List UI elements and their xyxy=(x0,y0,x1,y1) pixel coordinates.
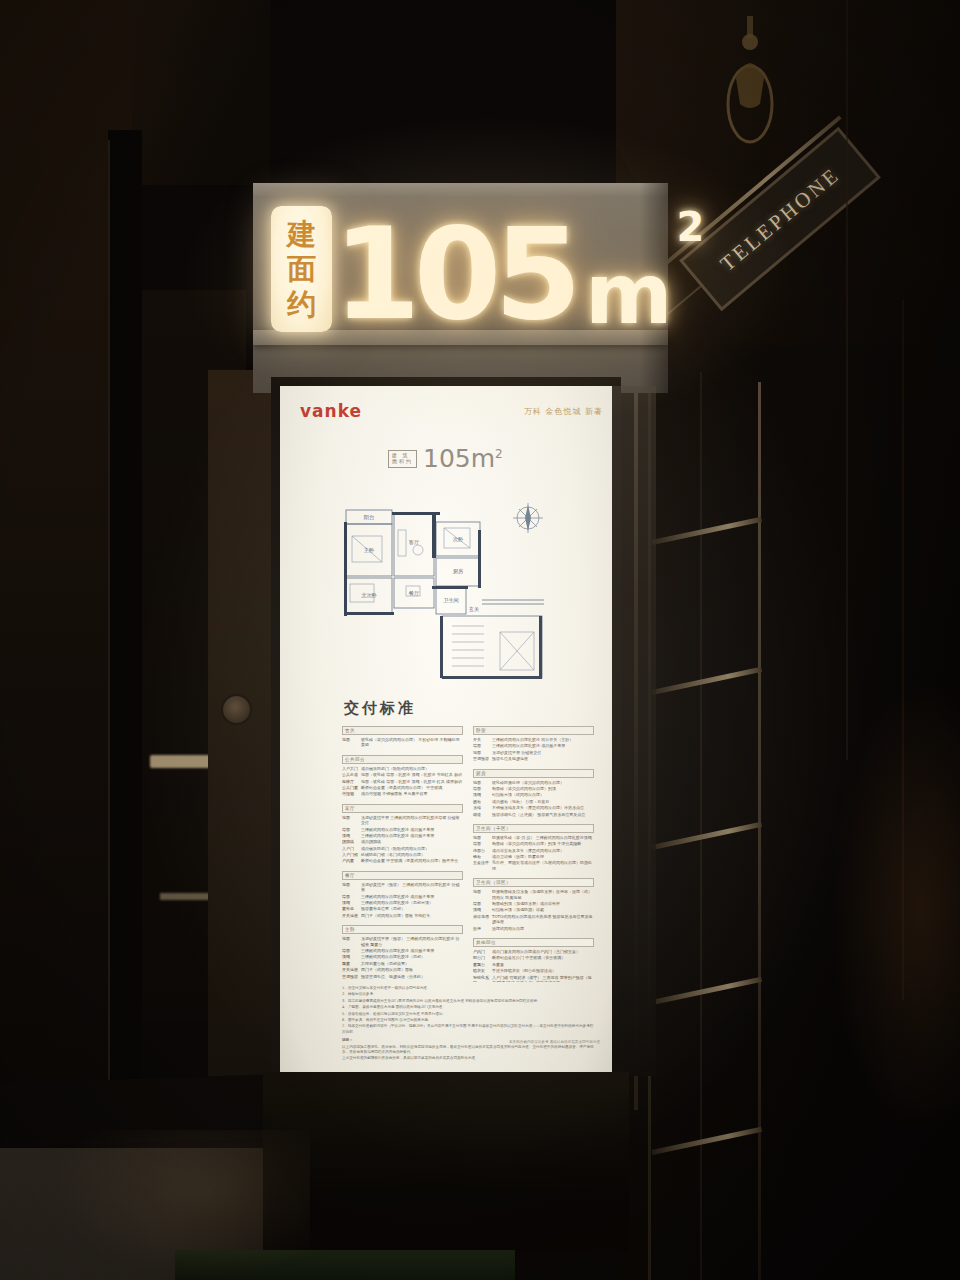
spec-row-label: 墙面 xyxy=(473,901,489,906)
delivery-notes: 1、所交付实物与本交付标准不一致的以合同约定为准。2、样板间仅供参考。3、因工程… xyxy=(342,986,596,1063)
spec-row-label: 飘窗 xyxy=(342,961,358,966)
spec-section: 玄关地面玻化砖（诺贝尔或同档次品牌） 不起砂处理 不翻碱处理 美观 xyxy=(342,726,463,749)
spec-row: 户内门成品门套及同档次品牌成品户内门（含门锁五金） xyxy=(473,949,594,954)
spec-row-text: 三棵树或同档次品牌乳胶漆 成品腻子基层 xyxy=(361,827,463,832)
spec-section-title: 卫生间（湿区） xyxy=(473,878,594,887)
spec-row-text: 釉面砖到顶（加强防水层）成品浴帘杆 xyxy=(492,901,594,906)
spec-row-label: 入户大门 xyxy=(342,766,358,771)
note-line: 1、所交付实物与本交付标准不一致的以合同约定为准。 xyxy=(342,986,596,991)
spec-section-title: 厨房 xyxy=(473,769,594,778)
spec-section: 卫生间（湿区）地面防滑釉面砖及挡水条（加强防水层）坐便器：箭牌（或）同档次 防臭… xyxy=(473,878,594,932)
spec-row-label: 窗帘盒 xyxy=(342,906,358,911)
vanke-logo: vanke xyxy=(300,401,362,421)
spec-row-label: 烟道 xyxy=(473,812,489,817)
spec-row-text: 毛巾杆、置物架等成品挂件（九牧或同档次品牌）防潮处理 xyxy=(492,860,594,871)
spec-row-text: 三棵树或同档次品牌乳胶漆 成品腻子基层 xyxy=(361,948,463,953)
spec-row: 顶棚三棵树或同档次品牌乳胶漆（局部吊顶） xyxy=(342,900,463,905)
spec-row-text: 机械防盗门锁（名门或同档次品牌） xyxy=(361,852,463,857)
spec-section: 卧室开关三棵树或同档次品牌乳胶漆 双控开关（主卧）墙面三棵树或同档次品牌乳胶漆 … xyxy=(473,726,594,763)
delivery-standards-title: 交付标准 xyxy=(344,699,416,718)
spec-row: 公共走道地面：玻化砖 墙面：乳胶漆 顶棚：乳胶漆 节能灯具 标识 xyxy=(342,772,463,777)
spec-row-text: 成品踢脚线 xyxy=(361,839,463,844)
spec-row-label: 顶棚 xyxy=(473,792,489,797)
spec-section: 餐厅地面水泥砂浆找平（预留） 三棵树或同档次品牌乳胶漆 待铺装墙面三棵树或同档次… xyxy=(342,871,463,919)
spec-row-text: 手摇升降晾衣架（阳台处预留挂点） xyxy=(492,968,594,973)
compass-icon xyxy=(513,503,543,533)
spec-row: 洗面台成品浴室柜及龙头（摩恩或同档次品牌） xyxy=(473,848,594,853)
spec-row-label: 地面 xyxy=(473,750,489,755)
room-label: 阳台 xyxy=(364,514,374,521)
spec-row: 开关插座西门子（或同档次品牌）面板 节能灯头 xyxy=(342,913,463,918)
spec-row-text: 预留排烟孔位（止逆阀） 预留燃气热水器位置及点位 xyxy=(492,812,594,817)
area-prefix-lightbox: 建 面 约 xyxy=(271,206,332,332)
spec-row: 墙面三棵树或同档次品牌乳胶漆 成品腻子基层 xyxy=(342,827,463,832)
spec-row: 顶棚铝扣板吊顶（加强防潮）浴霸 xyxy=(473,907,594,912)
spec-row: 墙面釉面砖到顶（加强防水层）成品浴帘杆 xyxy=(473,901,594,906)
spec-row-label: 墙面 xyxy=(473,841,489,846)
spec-row-label: 踢脚线 xyxy=(342,839,358,844)
spec-row-label: 晾衣架 xyxy=(473,968,489,973)
spec-row: 公共门窗断桥铝合金窗（坚美或同档次品牌） 中空玻璃 xyxy=(342,785,463,790)
spec-row-text: 铝扣板吊顶（或同档次品牌） xyxy=(492,792,594,797)
spec-section: 公共部分入户大门成品钢质防盗门（盼盼或同档次品牌）公共走道地面：玻化砖 墙面：乳… xyxy=(342,755,463,798)
spec-row-label: 电梯厅 xyxy=(342,779,358,784)
spec-row: 地面水泥砂浆找平层 待铺装交付 xyxy=(473,750,594,755)
spec-row-text: 三棵树或同档次品牌乳胶漆 双控开关（主卧） xyxy=(492,737,594,742)
spec-row-label: 公共门窗 xyxy=(342,785,358,790)
note-paragraph-line: 上述交付标准的解释权归开发商所有，具体以双方签署的商品房买卖合同及附件为准。 xyxy=(342,1056,596,1061)
spec-row-label: 户内门 xyxy=(473,949,489,954)
spec-row-label: 公共走道 xyxy=(342,772,358,777)
spec-row-text: 成品橱柜（地柜） 台面：石英石 xyxy=(492,799,594,804)
spec-row: 镜柜成品卫浴镜（箭牌）防雾处理 xyxy=(473,854,594,859)
spec-row-label: 顶棚 xyxy=(342,954,358,959)
spec-row: 墙面釉面砖（诺贝尔或同档次品牌）到顶 干湿分离隔断 xyxy=(473,841,594,846)
spec-row-text: 预留孔位及电源插座 xyxy=(492,756,594,761)
totem-side-panel xyxy=(612,386,656,1076)
hallway-wall xyxy=(208,370,280,1110)
wall-switch xyxy=(221,694,252,725)
spec-row-label: 墙面 xyxy=(342,894,358,899)
note-line: 3、因工程建设需要或政府主管部门要求调整的部分 以政府最终批准文件为准 材料设备… xyxy=(342,999,596,1004)
spec-row-text: 三棵树或同档次品牌乳胶漆 成品腻子基层 xyxy=(361,894,463,899)
spec-row-label: 地面 xyxy=(342,815,358,826)
room-label: 厨房 xyxy=(453,568,463,574)
spec-row-label: 智能化系统 xyxy=(473,975,489,982)
spec-row-text: 成品信报箱 不锈钢面板 单元集中设置 xyxy=(361,791,463,796)
note-line: 5、设备管线位置、检修口等以现场实际交付为准 不再另行通知。 xyxy=(342,1012,596,1017)
spec-row: 开关三棵树或同档次品牌乳胶漆 双控开关（主卧） xyxy=(473,737,594,742)
showroom-photo: TELEPHONE 建 面 约 105 m 2 vanke 万科 金色悦城 新著… xyxy=(0,0,960,1280)
spec-row-text: 箭牌或同档次品牌 xyxy=(492,926,594,931)
totem-base xyxy=(263,1072,629,1252)
room-label: 玄关 xyxy=(469,606,479,612)
spec-row-label: 水槽 xyxy=(473,805,489,810)
spec-section: 其他部位户内门成品门套及同档次品牌成品户内门（含门锁五金）阳台门断桥铝合金推拉门… xyxy=(473,938,594,982)
spec-section-title: 客厅 xyxy=(342,804,463,813)
poster-area-value: 105m2 xyxy=(423,444,503,473)
spec-row-text: 成品门套及同档次品牌成品户内门（含门锁五金） xyxy=(492,949,594,954)
spec-row-label: 顶棚 xyxy=(342,900,358,905)
spec-row-label: 五金挂件 xyxy=(473,860,489,871)
spec-row: 智能化系统入户门磁 可视对讲（楼宇） 三表远传 宽带到户预留（电信/联通/移动 … xyxy=(473,975,594,982)
spec-row-label: 开关 xyxy=(473,737,489,742)
spec-row-text: 三棵树或同档次品牌乳胶漆 成品腻子基层 xyxy=(361,833,463,838)
spec-row-text: TOTO或同档次品牌成品冷热花洒 预留电热水器位置及电源插座 xyxy=(492,914,594,925)
spec-row-label: 地面 xyxy=(342,737,358,748)
spec-row: 顶棚三棵树或同档次品牌乳胶漆（局部） xyxy=(342,954,463,959)
prefix-char: 建 xyxy=(287,220,316,249)
spec-row: 五金挂件毛巾杆、置物架等成品挂件（九牧或同档次品牌）防潮处理 xyxy=(473,860,594,871)
spec-row: 空调预留预留空调孔位、电源插座（分体机） xyxy=(342,974,463,979)
spec-row-label: 墙面 xyxy=(342,827,358,832)
spec-section-title: 公共部分 xyxy=(342,755,463,764)
spec-row: 户内窗断桥铝合金窗 中空玻璃（坚美或同档次品牌）附件齐全 xyxy=(342,858,463,863)
spec-row: 墙面釉面砖（诺贝尔或同档次品牌）到顶 xyxy=(473,786,594,791)
spec-row: 踢脚线成品踢脚线 xyxy=(342,839,463,844)
spec-row: 入户门成品钢质防盗门（盼盼或同档次品牌） xyxy=(342,846,463,851)
spec-section-title: 卫生间（干区） xyxy=(473,824,594,833)
spec-row: 淋浴花洒TOTO或同档次品牌成品冷热花洒 预留电热水器位置及电源插座 xyxy=(473,914,594,925)
spec-row-text: 成品卫浴镜（箭牌）防雾处理 xyxy=(492,854,594,859)
spec-row-text: 不锈钢水槽及龙头（摩恩或同档次品牌）冷热水点位 xyxy=(492,805,594,810)
spec-row-label: 淋浴花洒 xyxy=(473,914,489,925)
spec-section-title: 卧室 xyxy=(473,726,594,735)
spec-row: 晾衣架手摇升降晾衣架（阳台处预留挂点） xyxy=(473,968,594,973)
spec-section: 卫生间（干区）地面防滑玻化砖（诺·贝·尔） 三棵树或同档次品牌乳胶漆顶棚墙面釉面… xyxy=(473,824,594,872)
delivery-col-right: 卧室开关三棵树或同档次品牌乳胶漆 双控开关（主卧）墙面三棵树或同档次品牌乳胶漆 … xyxy=(473,726,594,982)
note-paragraph-line: 以上内容因施工图深化、政府审批、材料供应等原因可能发生调整，最终交付标准以商品房… xyxy=(342,1045,596,1056)
spec-row-label: 顶棚 xyxy=(342,833,358,838)
spec-row: 飘窗大理石窗台板（局部设置） xyxy=(342,961,463,966)
spec-row: 入户大门成品钢质防盗门（盼盼或同档次品牌） xyxy=(342,766,463,771)
spec-row-text: 预留窗帘盒位置（局部） xyxy=(361,906,463,911)
spec-row-label: 窗飘台 xyxy=(473,962,489,967)
spec-row-text: 三棵树或同档次品牌乳胶漆（局部） xyxy=(361,954,463,959)
room-label: 次卧 xyxy=(453,536,464,542)
spec-row: 坐便箭牌或同档次品牌 xyxy=(473,926,594,931)
spec-section: 厨房地面玻化砖防滑处理（诺贝尔或同档次品牌）墙面釉面砖（诺贝尔或同档次品牌）到顶… xyxy=(473,769,594,818)
spec-row-text: 断桥铝合金窗 中空玻璃（坚美或同档次品牌）附件齐全 xyxy=(361,858,463,863)
spec-row-text: 三棵树或同档次品牌乳胶漆 成品腻子基层 xyxy=(492,743,594,748)
spec-row-label: 镜柜 xyxy=(473,854,489,859)
spec-row-text: 三棵树或同档次品牌乳胶漆（局部吊顶） xyxy=(361,900,463,905)
spec-row-text: 入户门磁 可视对讲（楼宇） 三表远传 宽带到户预留（电信/联通/移动 光纤入户）… xyxy=(492,975,594,982)
project-name: 万科 金色悦城 新著 xyxy=(438,406,603,417)
booth-panel-seam xyxy=(846,0,848,760)
room-label: 餐厅 xyxy=(409,590,420,596)
room-label: 客厅 xyxy=(409,539,420,546)
booth-reflection xyxy=(830,680,960,1140)
note-line: 6、图中家具、饰品不在交付范围内 仅为空间效果示意。 xyxy=(342,1018,596,1023)
spec-row: 地面玻化砖防滑处理（诺贝尔或同档次品牌） xyxy=(473,780,594,785)
spec-row-text: 成品浴室柜及龙头（摩恩或同档次品牌） xyxy=(492,848,594,853)
spec-row-label: 橱柜 xyxy=(473,799,489,804)
spec-row-text: 玻化砖防滑处理（诺贝尔或同档次品牌） xyxy=(492,780,594,785)
spec-row-text: 地面：玻化砖 墙面：乳胶漆 顶棚：乳胶漆 灯具 楼层标识 xyxy=(361,779,463,784)
spec-row-label: 地面 xyxy=(342,882,358,893)
prefix-char: 面 xyxy=(287,255,316,284)
spec-row-label: 墙面 xyxy=(473,743,489,748)
grass-strip xyxy=(175,1250,515,1280)
spec-row-label: 空调预留 xyxy=(473,756,489,761)
spec-row-text: 水泥砂浆找平（预留） 三棵树或同档次品牌乳胶漆 待铺装 xyxy=(361,882,463,893)
spec-row-text: 防滑釉面砖及挡水条（加强防水层）坐便器：箭牌（或）同档次 防臭地漏 xyxy=(492,889,594,900)
shelf-highlight xyxy=(150,755,214,768)
spec-row-text: 成品钢质防盗门（盼盼或同档次品牌） xyxy=(361,766,463,771)
spec-row-label: 地面 xyxy=(473,780,489,785)
room-label: 北次卧 xyxy=(360,592,377,599)
door-frame xyxy=(108,130,142,1130)
area-tag-line: 面积约 xyxy=(392,459,413,465)
spec-section-title: 餐厅 xyxy=(342,871,463,880)
poster-area-tag: 建 筑 面积约 105m2 xyxy=(388,444,503,473)
area-digits-lightbox: 105 m 2 xyxy=(333,193,704,333)
spec-row-text: 成品钢质防盗门（盼盼或同档次品牌） xyxy=(361,846,463,851)
area-value: 105 xyxy=(333,217,575,333)
spec-row: 烟道预留排烟孔位（止逆阀） 预留燃气热水器位置及点位 xyxy=(473,812,594,817)
spec-row-text: 断桥铝合金推拉门 中空玻璃（安全玻璃） xyxy=(492,955,594,960)
spec-row: 窗帘盒预留窗帘盒位置（局部） xyxy=(342,906,463,911)
spec-row-label: 顶棚 xyxy=(473,907,489,912)
spec-row-text: 玻化砖（诺贝尔或同档次品牌） 不起砂处理 不翻碱处理 美观 xyxy=(361,737,463,748)
room-label: 卫生间 xyxy=(443,597,459,604)
spec-row-text: 地面：玻化砖 墙面：乳胶漆 顶棚：乳胶漆 节能灯具 标识 xyxy=(361,772,463,777)
spec-row-text: 水泥砂浆找平层（预留） 三棵树或同档次品牌乳胶漆 待铺装 飘窗台 xyxy=(361,936,463,947)
spec-row-label: 墙面 xyxy=(342,948,358,953)
spec-row-label: 入户门锁 xyxy=(342,852,358,857)
spec-section: 主卧地面水泥砂浆找平层（预留） 三棵树或同档次品牌乳胶漆 待铺装 飘窗台墙面三棵… xyxy=(342,925,463,980)
spec-row: 电梯厅地面：玻化砖 墙面：乳胶漆 顶棚：乳胶漆 灯具 楼层标识 xyxy=(342,779,463,784)
poster-footer-line: 本资料所载内容仅供参考 最终以商品房买卖合同约定为准 xyxy=(420,1040,600,1044)
spec-row-text: 西门子（或同档次品牌）面板 节能灯头 xyxy=(361,913,463,918)
spec-section-title: 其他部位 xyxy=(473,938,594,947)
spec-row: 窗飘台无窗套 xyxy=(473,962,594,967)
spec-row: 水槽不锈钢水槽及龙头（摩恩或同档次品牌）冷热水点位 xyxy=(473,805,594,810)
spec-row-label: 空调预留 xyxy=(342,974,358,979)
spec-row: 墙面三棵树或同档次品牌乳胶漆 成品腻子基层 xyxy=(342,894,463,899)
note-line: 2、样板间仅供参考。 xyxy=(342,992,596,997)
spec-row-text: 无窗套 xyxy=(492,962,594,967)
spec-row-label: 阳台门 xyxy=(473,955,489,960)
area-unit: m xyxy=(585,257,673,333)
floorplan-drawing: 阳台主卧客厅次卧餐厅北次卧厨房卫生间玄关 xyxy=(332,492,564,694)
spec-row-label: 开关插座 xyxy=(342,913,358,918)
spec-row-label: 坐便 xyxy=(473,926,489,931)
crown-emblem-icon xyxy=(722,8,778,144)
spec-row: 墙面三棵树或同档次品牌乳胶漆 成品腻子基层 xyxy=(342,948,463,953)
spec-row: 地面玻化砖（诺贝尔或同档次品牌） 不起砂处理 不翻碱处理 美观 xyxy=(342,737,463,748)
spec-row-label: 开关插座 xyxy=(342,967,358,972)
door-frame-highlight xyxy=(108,140,110,1120)
spec-row: 顶棚铝扣板吊顶（或同档次品牌） xyxy=(473,792,594,797)
spec-row-text: 釉面砖（诺贝尔或同档次品牌）到顶 xyxy=(492,786,594,791)
spec-row-text: 预留空调孔位、电源插座（分体机） xyxy=(361,974,463,979)
spec-row-text: 水泥砂浆找平层 三棵树或同档次品牌乳胶漆墙裙 待铺装交付 xyxy=(361,815,463,826)
spec-row: 入户门锁机械防盗门锁（名门或同档次品牌） xyxy=(342,852,463,857)
spec-section: 客厅地面水泥砂浆找平层 三棵树或同档次品牌乳胶漆墙裙 待铺装交付墙面三棵树或同档… xyxy=(342,804,463,865)
spec-section-title: 玄关 xyxy=(342,726,463,735)
room-label: 主卧 xyxy=(364,547,375,553)
spec-row-label: 地面 xyxy=(473,889,489,900)
prefix-char: 约 xyxy=(287,290,316,319)
note-line: 4、户型图、装修示意图仅为示意 面积以政府测绘部门实测为准。 xyxy=(342,1005,596,1010)
spec-row: 空调预留预留孔位及电源插座 xyxy=(473,756,594,761)
spec-row-label: 洗面台 xyxy=(473,848,489,853)
spec-row: 信报箱成品信报箱 不锈钢面板 单元集中设置 xyxy=(342,791,463,796)
spec-row: 阳台门断桥铝合金推拉门 中空玻璃（安全玻璃） xyxy=(473,955,594,960)
spec-row-text: 断桥铝合金窗（坚美或同档次品牌） 中空玻璃 xyxy=(361,785,463,790)
spec-row: 地面水泥砂浆找平（预留） 三棵树或同档次品牌乳胶漆 待铺装 xyxy=(342,882,463,893)
spec-row-text: 釉面砖（诺贝尔或同档次品牌）到顶 干湿分离隔断 xyxy=(492,841,594,846)
spec-row: 地面水泥砂浆找平层（预留） 三棵树或同档次品牌乳胶漆 待铺装 飘窗台 xyxy=(342,936,463,947)
spec-row-label: 入户门 xyxy=(342,846,358,851)
spec-row-text: 西门子（或同档次品牌）面板 xyxy=(361,967,463,972)
spec-row: 顶棚三棵树或同档次品牌乳胶漆 成品腻子基层 xyxy=(342,833,463,838)
spec-row: 橱柜成品橱柜（地柜） 台面：石英石 xyxy=(473,799,594,804)
note-line: 7、除本交付标准载明内容外（甲供部分、隐蔽部分）其余内容不属于交付范围 不属于精… xyxy=(342,1024,596,1035)
spec-row: 开关插座西门子（或同档次品牌）面板 xyxy=(342,967,463,972)
spec-row: 地面防滑釉面砖及挡水条（加强防水层）坐便器：箭牌（或）同档次 防臭地漏 xyxy=(473,889,594,900)
spec-row-label: 墙面 xyxy=(473,786,489,791)
spec-row: 墙面三棵树或同档次品牌乳胶漆 成品腻子基层 xyxy=(473,743,594,748)
spec-row-text: 大理石窗台板（局部设置） xyxy=(361,961,463,966)
area-tag-box: 建 筑 面积约 xyxy=(388,450,417,468)
delivery-col-left: 玄关地面玻化砖（诺贝尔或同档次品牌） 不起砂处理 不翻碱处理 美观公共部分入户大… xyxy=(342,726,463,982)
spec-row-text: 水泥砂浆找平层 待铺装交付 xyxy=(492,750,594,755)
spec-row-label: 地面 xyxy=(473,835,489,840)
spec-row-label: 户内窗 xyxy=(342,858,358,863)
spec-row: 地面防滑玻化砖（诺·贝·尔） 三棵树或同档次品牌乳胶漆顶棚 xyxy=(473,835,594,840)
area-superscript: 2 xyxy=(677,207,705,247)
spec-row-text: 铝扣板吊顶（加强防潮）浴霸 xyxy=(492,907,594,912)
delivery-standards-table: 玄关地面玻化砖（诺贝尔或同档次品牌） 不起砂处理 不翻碱处理 美观公共部分入户大… xyxy=(342,726,594,982)
spec-section-title: 主卧 xyxy=(342,925,463,934)
spec-row-text: 防滑玻化砖（诺·贝·尔） 三棵树或同档次品牌乳胶漆顶棚 xyxy=(492,835,594,840)
spec-row-label: 信报箱 xyxy=(342,791,358,796)
spec-row-label: 地面 xyxy=(342,936,358,947)
spec-row: 地面水泥砂浆找平层 三棵树或同档次品牌乳胶漆墙裙 待铺装交付 xyxy=(342,815,463,826)
